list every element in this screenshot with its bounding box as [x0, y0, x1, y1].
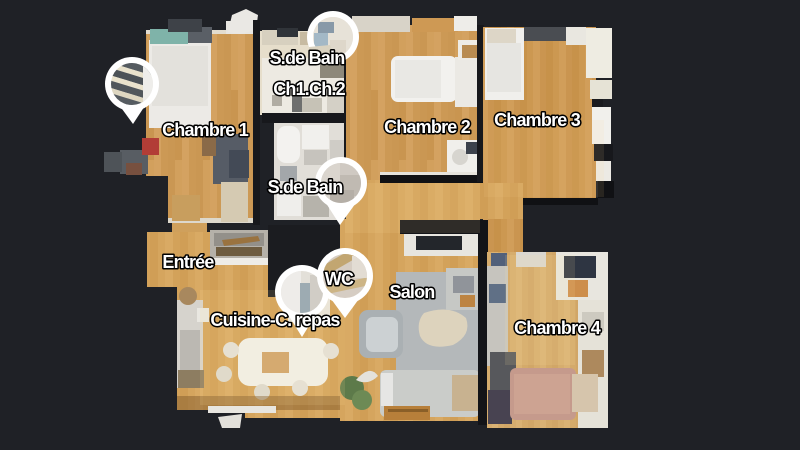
svg-text:Chambre 2: Chambre 2	[384, 117, 471, 137]
svg-text:Chambre 3: Chambre 3	[494, 110, 581, 130]
svg-text:Salon: Salon	[389, 282, 434, 302]
svg-text:Ch1.Ch.2: Ch1.Ch.2	[273, 79, 345, 99]
svg-text:S.de Bain: S.de Bain	[270, 48, 345, 68]
svg-text:Entrée: Entrée	[162, 252, 214, 272]
svg-text:S.de Bain: S.de Bain	[268, 177, 343, 197]
svg-text:Chambre 1: Chambre 1	[162, 120, 249, 140]
svg-text:Chambre 4: Chambre 4	[514, 318, 601, 338]
svg-text:Cuisine-C. repas: Cuisine-C. repas	[210, 310, 340, 330]
svg-text:WC: WC	[325, 269, 354, 289]
